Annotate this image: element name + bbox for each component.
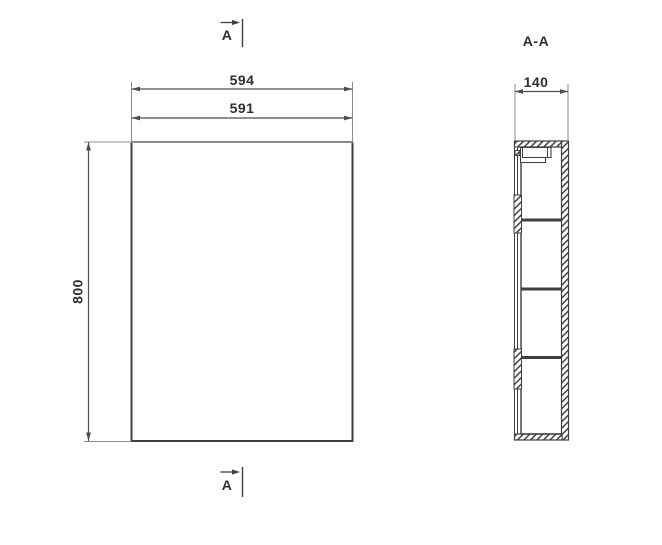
- dimension-depth: 140: [515, 74, 568, 140]
- section-top-panel: [515, 141, 563, 147]
- dim-inner-width-value: 591: [230, 100, 255, 116]
- section-hinge-block-lower: [514, 349, 522, 389]
- front-view: [131, 142, 354, 441]
- front-panel: [132, 142, 353, 441]
- section-top-detail: [521, 148, 552, 163]
- section-cut-marker-top: A: [221, 19, 243, 47]
- technical-drawing: A 594 591 800 A A-A: [0, 0, 662, 545]
- dim-arrow-right-icon: [344, 116, 353, 121]
- section-back-wall: [562, 141, 569, 440]
- dim-height-value: 800: [70, 279, 86, 304]
- cut-direction-arrow-icon: [232, 469, 240, 474]
- section-bottom-panel: [515, 434, 563, 440]
- cut-marker-top-label: A: [222, 27, 233, 43]
- section-view: [514, 141, 569, 440]
- dim-arrow-right-icon: [560, 89, 568, 94]
- dim-outer-width-value: 594: [230, 72, 255, 88]
- section-shelf-3: [521, 356, 562, 359]
- section-top-detail-block: [515, 151, 520, 156]
- section-front-door-panel: [515, 147, 518, 434]
- section-hinge-block-upper: [514, 195, 522, 233]
- section-shelf-2: [521, 288, 562, 291]
- cut-direction-arrow-icon: [232, 20, 240, 25]
- dim-depth-value: 140: [524, 74, 549, 90]
- section-view-title: A-A: [523, 33, 549, 49]
- cut-marker-bottom-label: A: [222, 477, 233, 493]
- dim-arrow-left-icon: [515, 89, 523, 94]
- dim-arrow-down-icon: [86, 433, 91, 442]
- dimension-inner-width: 591: [132, 100, 353, 120]
- dimension-height: 800: [70, 142, 131, 442]
- section-cut-marker-bottom: A: [221, 467, 243, 497]
- drawing-canvas: A 594 591 800 A A-A: [0, 0, 662, 545]
- section-shelf-1: [521, 219, 562, 222]
- dim-arrow-up-icon: [86, 142, 91, 151]
- dim-arrow-left-icon: [132, 116, 141, 121]
- dim-arrow-right-icon: [344, 87, 353, 92]
- dim-arrow-left-icon: [132, 87, 141, 92]
